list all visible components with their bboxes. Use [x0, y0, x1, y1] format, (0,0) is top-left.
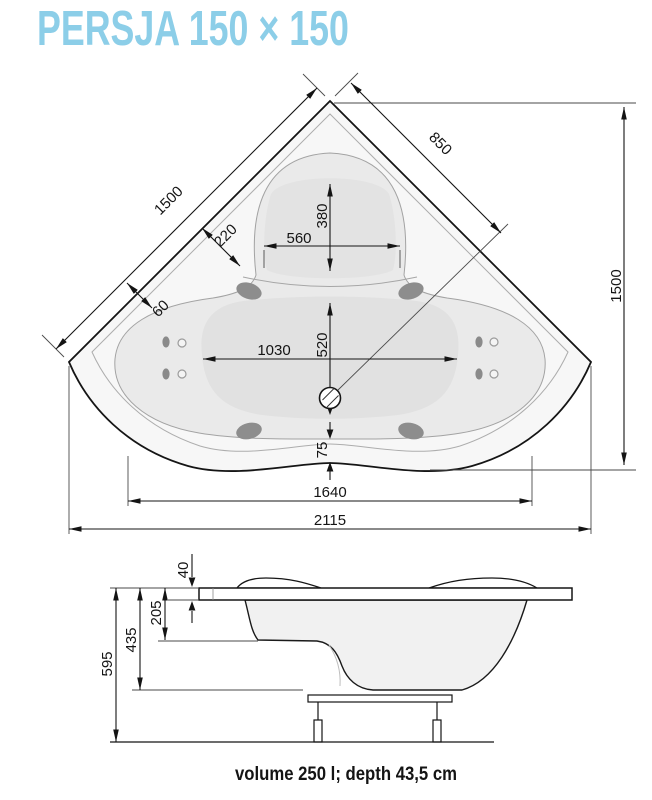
dim-wall-left: 1500 [151, 183, 187, 219]
side-bowl [245, 600, 527, 690]
headrest-left [237, 578, 321, 588]
micro-jet-icon [162, 368, 169, 379]
dim-shell-height: 435 [123, 627, 140, 652]
dim-height-right: 1500 [608, 269, 625, 302]
micro-jet-icon [490, 338, 498, 346]
arrowhead [189, 601, 196, 611]
micro-jet-icon [475, 368, 482, 379]
dim-width-total: 2115 [314, 512, 346, 529]
dim-rim-to-seat: 205 [148, 600, 165, 625]
drain-icon [320, 388, 341, 409]
technical-drawing: 1500 850 1500 220 60 560 380 1030 [0, 0, 652, 800]
dim-rim-thickness: 40 [175, 562, 192, 579]
dim-width-inner: 1640 [313, 484, 346, 501]
micro-jet-icon [178, 370, 186, 378]
extension-line [42, 335, 64, 357]
dim-seat-to-drain: 520 [314, 332, 331, 357]
micro-jet-icon [475, 336, 482, 347]
dim-total-height: 595 [99, 651, 116, 676]
dim-seat-depth: 380 [314, 203, 331, 228]
foot-right [433, 720, 441, 742]
page: PERSJA 150 × 150 [0, 0, 652, 800]
headrest-right [429, 578, 537, 588]
dim-corner-to-drain: 850 [425, 129, 455, 159]
side-rim [199, 588, 572, 600]
drain [320, 388, 341, 409]
micro-jet-icon [178, 339, 186, 347]
dim-front-apron: 75 [314, 442, 331, 459]
volume-depth-note: volume 250 l; depth 43,5 cm [77, 764, 616, 786]
side-view: 40 205 435 595 [99, 554, 572, 742]
micro-jet-icon [162, 336, 169, 347]
support-frame [308, 695, 452, 702]
extension-line [303, 74, 325, 96]
extension-line [335, 73, 358, 96]
dim-bowl-length: 1030 [257, 342, 290, 359]
dim-seat-width: 560 [286, 230, 311, 247]
micro-jet-icon [490, 370, 498, 378]
top-view: 1500 850 1500 220 60 560 380 1030 [42, 73, 636, 534]
dimensions-side: 40 205 435 595 [99, 554, 195, 742]
foot-left [314, 720, 322, 742]
